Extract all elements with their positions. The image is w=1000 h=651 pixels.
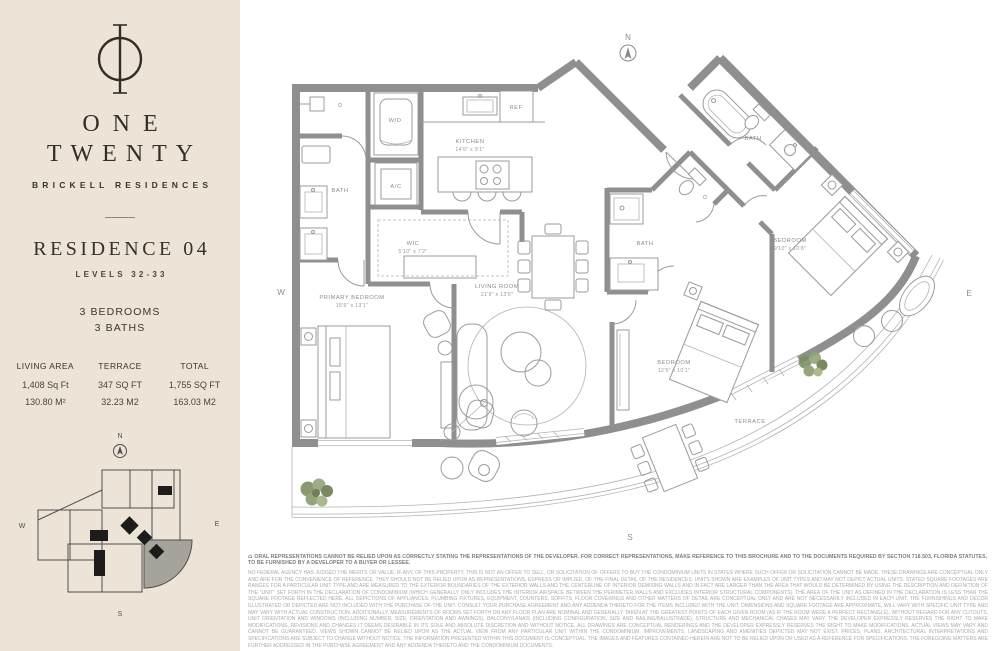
baths-count: 3 BATHS xyxy=(0,320,240,336)
stat-label: TOTAL xyxy=(157,361,232,371)
floorplan-panel: N W E S xyxy=(240,0,1000,651)
equal-housing-icon: ⌂ xyxy=(248,553,252,560)
terrace-label: TERRACE xyxy=(734,419,765,425)
area-stats: LIVING AREA 1,408 Sq Ft 130.80 M² TERRAC… xyxy=(8,361,232,414)
brand-name-line2: TWENTY xyxy=(0,141,240,168)
wic-label: WIC xyxy=(407,241,420,247)
brand-subtitle: BRICKELL RESIDENCES xyxy=(0,180,240,190)
disclaimer-lead-text: ORAL REPRESENTATIONS CANNOT BE RELIED UP… xyxy=(248,554,987,566)
south-orientation-label: S xyxy=(627,533,632,542)
keyplan-west-label: W xyxy=(19,523,26,530)
kitchen-fixtures xyxy=(421,91,545,201)
stat-label: LIVING AREA xyxy=(8,361,83,371)
stat-label: TERRACE xyxy=(83,361,158,371)
stat-metric: 130.80 M² xyxy=(8,397,83,407)
primary-bath-label: BATH xyxy=(331,188,348,194)
divider xyxy=(105,217,135,218)
stat-total: TOTAL 1,755 SQ FT 163.03 M2 xyxy=(157,361,232,414)
sidebar: ONE TWENTY BRICKELL RESIDENCES RESIDENCE… xyxy=(0,0,240,651)
bedrooms-count: 3 BEDROOMS xyxy=(0,304,240,320)
stat-metric: 32.23 M2 xyxy=(83,397,158,407)
stat-metric: 163.03 M2 xyxy=(157,397,232,407)
ne-bedroom-label: BEDROOM xyxy=(773,238,806,244)
residence-config: 3 BEDROOMS 3 BATHS xyxy=(0,304,240,336)
laundry-closet xyxy=(374,93,418,155)
stat-imperial: 347 SQ FT xyxy=(83,380,158,390)
ne-bedroom-dims: 9'10" x 10'8" xyxy=(774,246,806,252)
residence-title: RESIDENCE 04 xyxy=(0,238,240,261)
building-keyplan: N xyxy=(10,424,230,629)
plant-icon xyxy=(301,479,334,507)
residence-levels: LEVELS 32-33 xyxy=(0,270,240,279)
kitchen-label: KITCHEN xyxy=(456,139,485,145)
wic-dims: 5'10" x 7'2" xyxy=(398,249,427,255)
living-room-label: LIVING ROOM xyxy=(475,284,519,290)
keyplan-east-label: E xyxy=(215,521,220,528)
living-room-dims: 21'9" x 13'6" xyxy=(481,292,513,298)
legal-disclaimer: ⌂ORAL REPRESENTATIONS CANNOT BE RELIED U… xyxy=(248,553,988,649)
powder-room-fixtures xyxy=(300,97,342,111)
keyplan-drawing: N xyxy=(10,424,230,629)
keyplan-highlighted-unit xyxy=(144,540,192,588)
keyplan-compass-icon xyxy=(114,445,127,458)
se-bedroom-label: BEDROOM xyxy=(657,360,690,366)
west-orientation-label: W xyxy=(277,288,285,297)
primary-bath-fixtures xyxy=(300,146,330,260)
compass-north-label: N xyxy=(625,33,631,42)
brand-name-line1: ONE xyxy=(0,111,240,138)
stat-imperial: 1,755 SQ FT xyxy=(157,380,232,390)
ne-bath-label: BATH xyxy=(744,136,761,142)
stat-living-area: LIVING AREA 1,408 Sq Ft 130.80 M² xyxy=(8,361,83,414)
ref-label: REF xyxy=(509,105,522,111)
disclaimer-body: NO FEDERAL AGENCY HAS JUDGED THE MERITS … xyxy=(248,570,988,649)
keyplan-north-label: N xyxy=(117,433,122,440)
wd-label: W/D xyxy=(389,118,402,124)
primary-bedroom-dims: 15'6" x 13'1" xyxy=(336,303,368,309)
one-twenty-monogram-icon xyxy=(60,16,180,102)
primary-bedroom-furniture xyxy=(301,326,452,438)
dining-set xyxy=(518,224,588,310)
stat-imperial: 1,408 Sq Ft xyxy=(8,380,83,390)
brand-logo xyxy=(0,16,240,107)
compass-icon: N xyxy=(620,33,636,61)
stat-terrace: TERRACE 347 SQ FT 32.23 M2 xyxy=(83,361,158,414)
ac-label: A/C xyxy=(390,184,401,190)
se-bedroom-dims: 12'5" x 10'1" xyxy=(658,368,690,374)
keyplan-south-label: S xyxy=(118,611,123,618)
center-bath-label: BATH xyxy=(636,241,653,247)
kitchen-dims: 14'6" x 9'1" xyxy=(455,147,484,153)
primary-bedroom-label: PRIMARY BEDROOM xyxy=(319,295,384,301)
brochure-page: ONE TWENTY BRICKELL RESIDENCES RESIDENCE… xyxy=(0,0,1000,651)
disclaimer-lead: ⌂ORAL REPRESENTATIONS CANNOT BE RELIED U… xyxy=(248,553,988,566)
east-orientation-label: E xyxy=(966,289,971,298)
